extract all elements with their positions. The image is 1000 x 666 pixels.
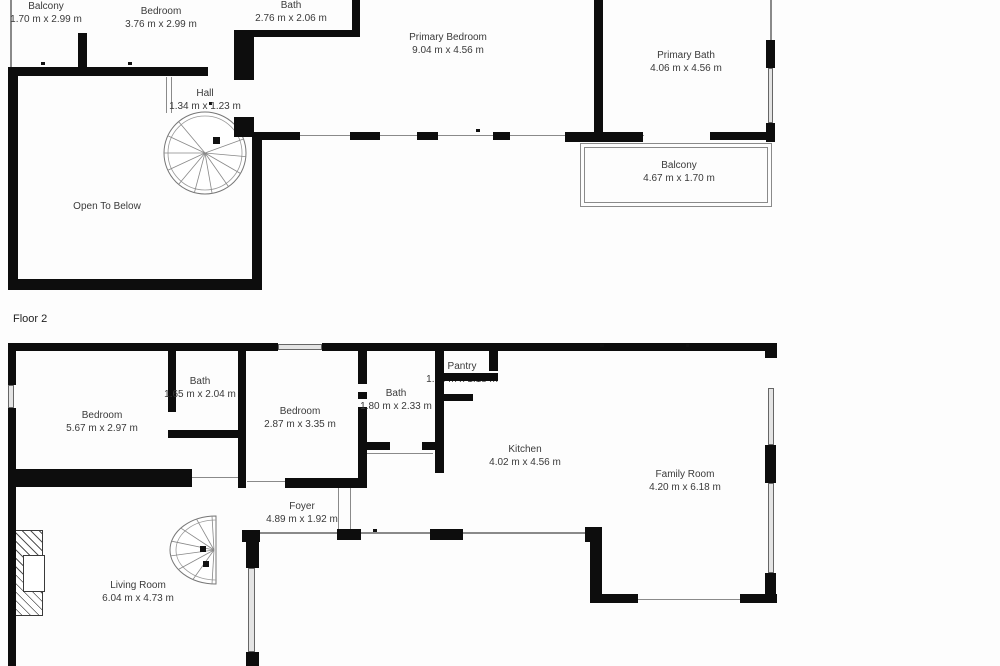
wall: [234, 117, 254, 137]
wall: [322, 343, 773, 351]
room-name: Hall: [169, 88, 241, 101]
window: [8, 385, 14, 408]
window: [248, 568, 255, 652]
room-label-bath: Bath 2.76 m x 2.06 m: [255, 0, 327, 25]
opening-line: [247, 481, 285, 482]
window-line: [770, 0, 772, 40]
closet-line: [367, 453, 433, 454]
door-line: [338, 488, 339, 533]
room-label-foyer: Foyer 4.89 m x 1.92 m: [266, 501, 338, 526]
room-dims: 4.02 m x 4.56 m: [489, 457, 561, 470]
fireplace-box: [23, 555, 45, 592]
room-dims: 6.04 m x 4.73 m: [102, 593, 174, 606]
room-name: Bedroom: [125, 6, 197, 19]
room-label-balcony: Balcony 1.70 m x 2.99 m: [10, 1, 82, 26]
wall: [8, 67, 208, 76]
railing-line: [166, 77, 167, 113]
floor-plan-canvas: Balcony 1.70 m x 2.99 m Bedroom 3.76 m x…: [0, 0, 1000, 666]
wall: [352, 0, 360, 35]
wall: [422, 442, 438, 450]
wall: [246, 532, 259, 568]
room-dims: 4.20 m x 6.18 m: [649, 482, 721, 495]
wall: [350, 132, 380, 140]
marker-dot: [686, 344, 689, 347]
room-dims: 1.65 m x 2.04 m: [164, 389, 236, 402]
room-label-primary-bath: Primary Bath 4.06 m x 4.56 m: [650, 50, 722, 75]
room-name: Bedroom: [264, 406, 336, 419]
wall: [8, 72, 18, 290]
wall: [234, 30, 254, 80]
wall: [252, 137, 262, 279]
window: [768, 483, 774, 573]
room-label-open-to-below: Open To Below: [73, 201, 141, 214]
wall: [765, 445, 776, 483]
opening-line: [192, 477, 238, 478]
marker-dot: [203, 561, 209, 567]
room-name: Balcony: [10, 1, 82, 14]
room-name: Primary Bedroom: [409, 32, 487, 45]
wall: [710, 132, 773, 140]
wall: [765, 573, 776, 603]
marker-dot: [213, 137, 220, 144]
marker-dot: [41, 62, 45, 65]
floor-label: Floor 2: [13, 313, 47, 325]
room-label-living-room: Living Room 6.04 m x 4.73 m: [102, 580, 174, 605]
marker-dot: [373, 529, 377, 532]
spiral-staircase: [166, 514, 218, 586]
wall: [254, 30, 360, 37]
room-label-bedroom: Bedroom 3.76 m x 2.99 m: [125, 6, 197, 31]
room-name: Foyer: [266, 501, 338, 514]
room-label-family-room: Family Room 4.20 m x 6.18 m: [649, 469, 721, 494]
room-label-bath-small: Bath 1.65 m x 2.04 m: [164, 376, 236, 401]
room-name: Living Room: [102, 580, 174, 593]
wall: [765, 343, 777, 358]
room-label-bedroom-middle: Bedroom 2.87 m x 3.35 m: [264, 406, 336, 431]
wall: [590, 594, 638, 603]
marker-dot: [476, 129, 480, 132]
wall: [8, 279, 262, 290]
window: [768, 68, 773, 123]
room-dims: 4.67 m x 1.70 m: [643, 173, 715, 186]
room-name: Balcony: [643, 160, 715, 173]
wall: [594, 0, 603, 133]
opening-line: [638, 599, 740, 600]
wall: [435, 343, 444, 473]
room-label-bath-2: Bath 1.80 m x 2.33 m: [360, 388, 432, 413]
wall: [78, 33, 87, 73]
room-label-primary-bedroom: Primary Bedroom 9.04 m x 4.56 m: [409, 32, 487, 57]
window: [278, 344, 322, 350]
wall: [367, 442, 390, 450]
marker-dot: [128, 62, 132, 65]
wall: [766, 40, 775, 68]
room-label-bedroom-left: Bedroom 5.67 m x 2.97 m: [66, 410, 138, 435]
window: [768, 388, 774, 445]
room-name: Primary Bath: [650, 50, 722, 63]
room-label-balcony-right: Balcony 4.67 m x 1.70 m: [643, 160, 715, 185]
wall: [417, 132, 438, 140]
room-label-kitchen: Kitchen 4.02 m x 4.56 m: [489, 444, 561, 469]
wall: [444, 373, 498, 381]
wall: [358, 407, 367, 488]
room-name: Bedroom: [66, 410, 138, 423]
room-name: Open To Below: [73, 201, 141, 214]
door-line: [350, 488, 351, 533]
wall: [565, 132, 643, 142]
room-dims: 2.76 m x 2.06 m: [255, 13, 327, 26]
wall: [8, 343, 278, 351]
room-dims: 1.70 m x 2.99 m: [10, 14, 82, 27]
room-dims: 9.04 m x 4.56 m: [409, 45, 487, 58]
room-name: Bath: [255, 0, 327, 13]
room-label-hall: Hall 1.34 m x 1.23 m: [169, 88, 241, 113]
room-dims: 1.34 m x 1.23 m: [169, 101, 241, 114]
wall: [238, 351, 246, 488]
room-name: Kitchen: [489, 444, 561, 457]
marker-dot: [600, 344, 604, 347]
room-name: Bath: [164, 376, 236, 389]
wall: [8, 343, 16, 385]
wall: [489, 343, 498, 371]
wall: [337, 529, 361, 540]
wall: [585, 527, 602, 542]
room-dims: 1.80 m x 2.33 m: [360, 401, 432, 414]
room-dims: 2.87 m x 3.35 m: [264, 419, 336, 432]
wall: [766, 123, 775, 142]
room-dims: 4.89 m x 1.92 m: [266, 514, 338, 527]
wall: [246, 652, 259, 666]
marker-dot: [200, 546, 206, 552]
wall: [440, 394, 473, 401]
wall: [493, 132, 510, 140]
room-dims: 4.06 m x 4.56 m: [650, 63, 722, 76]
wall: [285, 478, 367, 488]
wall: [430, 529, 463, 540]
room-name: Family Room: [649, 469, 721, 482]
room-dims: 3.76 m x 2.99 m: [125, 19, 197, 32]
room-dims: 5.67 m x 2.97 m: [66, 423, 138, 436]
wall: [15, 469, 192, 487]
opening-line: [260, 532, 590, 534]
wall: [8, 408, 16, 666]
room-name: Bath: [360, 388, 432, 401]
wall: [358, 351, 367, 384]
wall: [168, 430, 246, 438]
